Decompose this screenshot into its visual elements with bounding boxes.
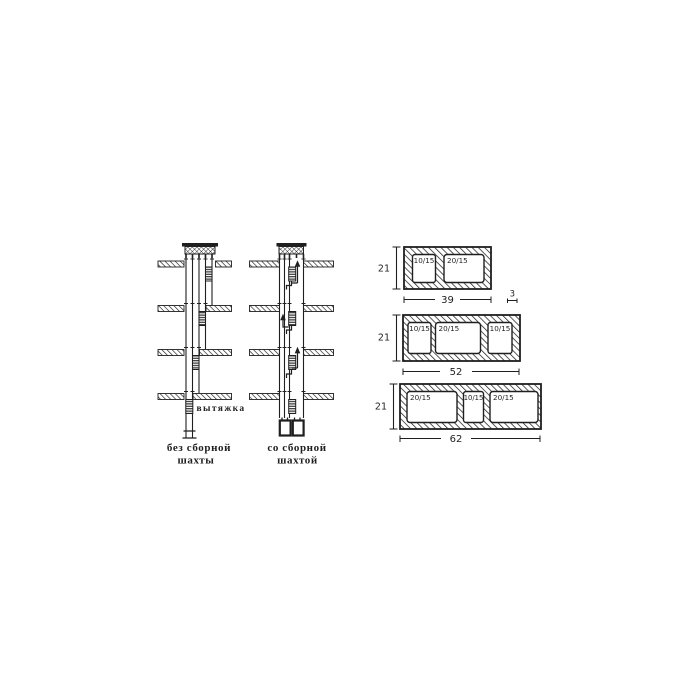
block-section-39: 10/15 20/15 21 39 3 xyxy=(378,247,517,306)
width-dimension-line xyxy=(400,436,540,443)
cell-size-label: 20/15 xyxy=(410,393,431,402)
width-dimension-label: 52 xyxy=(450,367,463,378)
cell-size-label: 10/15 xyxy=(414,256,435,265)
up-arrow-icon xyxy=(295,260,301,267)
caption-without-shaft-line2: шахты xyxy=(177,455,214,467)
block-cross-sections-diagram: 10/15 20/15 21 39 3 10/15 20/15 10/15 21… xyxy=(370,230,560,450)
floor-slabs xyxy=(158,261,232,400)
cell-size-label: 10/15 xyxy=(490,324,511,333)
height-dimension-line xyxy=(393,315,401,361)
shaft-cap xyxy=(182,243,218,258)
exhaust-label: вытяжка xyxy=(197,404,246,414)
ventilation-shafts-diagram: вытяжка без сборной шахты xyxy=(140,230,360,480)
cell-size-label: 20/15 xyxy=(493,393,514,402)
scanned-diagram-page: вытяжка без сборной шахты xyxy=(0,0,700,700)
cell-size-label: 20/15 xyxy=(439,324,460,333)
caption-with-shaft-line2: шахтой xyxy=(277,455,318,467)
height-dimension-line xyxy=(393,247,401,289)
caption-without-shaft-line1: без сборной xyxy=(167,442,231,454)
cell-size-label: 10/15 xyxy=(464,394,484,402)
cap-ticks xyxy=(280,254,304,258)
shaft-with-collector: со сборной шахтой xyxy=(250,243,334,467)
caption-with-shaft-line1: со сборной xyxy=(267,442,326,454)
width-dimension-label: 62 xyxy=(450,434,463,445)
height-dimension-line xyxy=(390,384,398,429)
cell-size-label: 20/15 xyxy=(447,256,468,265)
shaft-without-collector: вытяжка без сборной шахты xyxy=(158,243,246,467)
cell-size-label: 10/15 xyxy=(409,324,430,333)
wall-thickness-label: 3 xyxy=(510,290,515,300)
intake-boxes xyxy=(280,421,304,436)
height-dimension-label: 21 xyxy=(375,402,387,413)
shaft-tail-end xyxy=(183,431,197,438)
up-arrow-icon xyxy=(295,347,301,354)
width-dimension-label: 39 xyxy=(441,295,454,306)
block-section-62: 20/15 10/15 20/15 21 62 xyxy=(375,384,541,445)
height-dimension-label: 21 xyxy=(378,264,390,275)
height-dimension-label: 21 xyxy=(378,333,390,344)
shaft-cap xyxy=(277,243,307,258)
block-section-52: 10/15 20/15 10/15 21 52 xyxy=(378,315,520,378)
